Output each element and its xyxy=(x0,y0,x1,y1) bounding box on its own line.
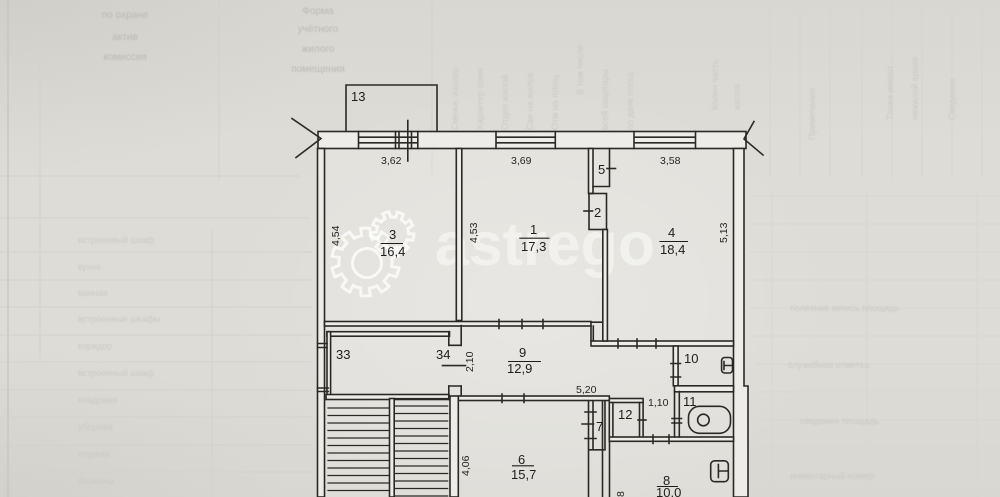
svg-text:Отм на площ: Отм на площ xyxy=(550,74,560,130)
svg-text:17,3: 17,3 xyxy=(521,239,546,254)
svg-text:встроенный шкаф: встроенный шкаф xyxy=(78,368,155,378)
svg-text:полезная запись площадь: полезная запись площадь xyxy=(790,303,900,313)
svg-text:11: 11 xyxy=(683,394,697,409)
svg-text:инвентарный номер: инвентарный номер xyxy=(790,471,874,481)
svg-text:3: 3 xyxy=(389,227,396,242)
svg-text:актив: актив xyxy=(112,32,138,43)
svg-text:10: 10 xyxy=(684,351,698,366)
svg-text:Также имеют: Также имеют xyxy=(885,66,895,120)
svg-text:по даче площ: по даче площ xyxy=(625,72,635,130)
svg-text:сведения площадь: сведения площадь xyxy=(800,416,880,426)
svg-text:9: 9 xyxy=(519,345,526,360)
svg-text:нежилой архив: нежилой архив xyxy=(910,57,920,120)
svg-text:12: 12 xyxy=(618,407,632,422)
svg-text:33: 33 xyxy=(336,347,350,362)
svg-text:18,4: 18,4 xyxy=(660,242,685,257)
svg-text:учётного: учётного xyxy=(298,24,339,35)
svg-text:4,06: 4,06 xyxy=(460,455,472,476)
svg-text:коридор: коридор xyxy=(78,341,112,351)
svg-text:3,69: 3,69 xyxy=(511,155,532,167)
svg-text:8: 8 xyxy=(615,491,627,497)
svg-text:5,13: 5,13 xyxy=(718,222,730,243)
svg-text:Све на жилое: Све на жилое xyxy=(525,72,535,130)
svg-text:Колич часть: Колич часть xyxy=(710,59,720,110)
svg-text:6: 6 xyxy=(518,452,525,467)
svg-text:3,58: 3,58 xyxy=(660,155,681,167)
svg-text:встроенные шкафы: встроенные шкафы xyxy=(78,314,160,324)
svg-text:16,4: 16,4 xyxy=(380,244,405,259)
svg-text:ванная: ванная xyxy=(78,288,108,298)
svg-text:жилая: жилая xyxy=(732,84,742,110)
svg-text:по охране: по охране xyxy=(102,10,149,21)
svg-text:лоджия: лоджия xyxy=(78,449,109,459)
svg-text:уборная: уборная xyxy=(78,422,113,432)
svg-text:В том числе: В том числе xyxy=(575,44,585,95)
svg-text:служебная отметка: служебная отметка xyxy=(788,360,869,370)
svg-text:встроенный шкаф: встроенный шкаф xyxy=(78,235,155,245)
svg-text:Характер комн: Характер комн xyxy=(475,68,485,130)
svg-text:12,9: 12,9 xyxy=(507,361,532,376)
svg-text:Форма: Форма xyxy=(302,6,334,17)
svg-text:Сведения: Сведения xyxy=(947,79,957,120)
svg-text:2: 2 xyxy=(594,205,601,220)
svg-text:Отдел жилой: Отдел жилой xyxy=(500,75,510,130)
svg-text:1: 1 xyxy=(530,222,537,237)
svg-text:балконы: балконы xyxy=(78,476,114,486)
svg-text:13: 13 xyxy=(351,89,365,104)
svg-text:1,10: 1,10 xyxy=(648,397,669,409)
svg-text:4: 4 xyxy=(668,225,675,240)
svg-text:4,54: 4,54 xyxy=(330,225,342,246)
svg-text:жилого: жилого xyxy=(302,44,335,55)
svg-text:кладовая: кладовая xyxy=(78,395,117,405)
svg-text:5: 5 xyxy=(598,162,605,177)
svg-text:кухня: кухня xyxy=(78,262,101,272)
svg-text:15,7: 15,7 xyxy=(511,467,536,482)
svg-text:Смежн. изолир: Смежн. изолир xyxy=(450,67,460,130)
svg-text:помещения: помещения xyxy=(291,64,345,75)
svg-text:4,53: 4,53 xyxy=(468,222,480,243)
svg-text:Примечание: Примечание xyxy=(807,88,817,140)
svg-text:2,10: 2,10 xyxy=(464,351,476,372)
svg-text:7: 7 xyxy=(596,419,603,434)
svg-text:10,0: 10,0 xyxy=(656,485,681,497)
svg-text:3,62: 3,62 xyxy=(381,155,402,167)
svg-text:всей квартиры: всей квартиры xyxy=(600,69,610,130)
svg-text:5,20: 5,20 xyxy=(576,384,597,396)
svg-text:34: 34 xyxy=(436,347,450,362)
svg-text:комиссия: комиссия xyxy=(103,52,147,63)
